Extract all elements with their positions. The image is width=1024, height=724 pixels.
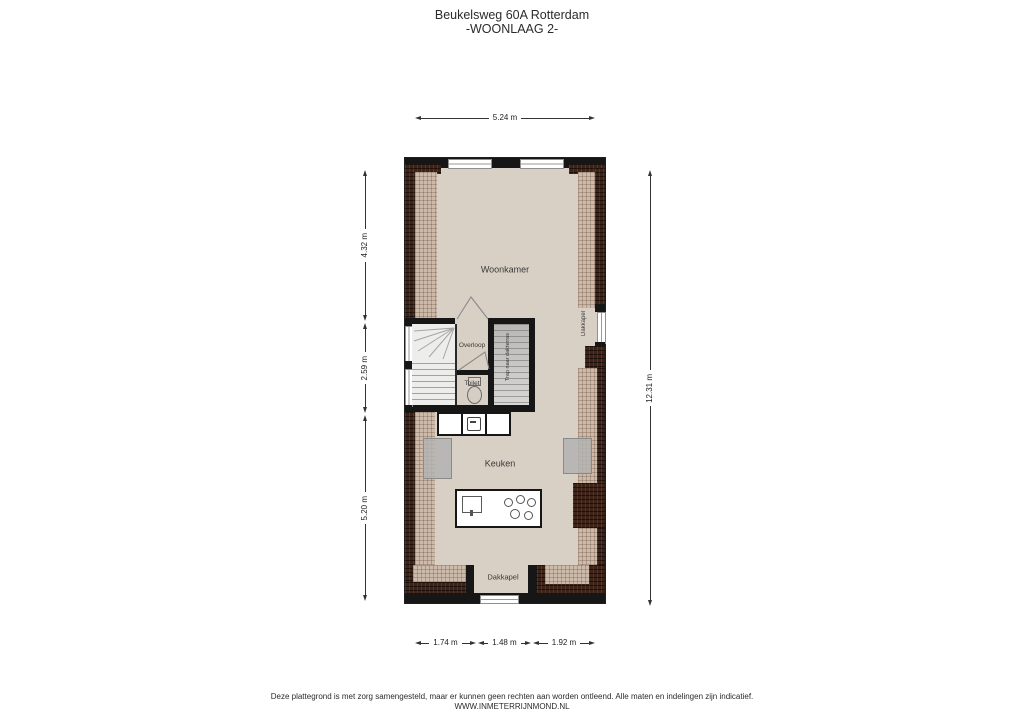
dimension-bottom-right: 1.92 m xyxy=(533,637,595,649)
address-title: Beukelsweg 60A Rotterdam xyxy=(0,8,1024,22)
dimension-left-bottom-label: 5.20 m xyxy=(361,492,369,524)
room-label-dakkapel-right: Dakkapel xyxy=(581,311,587,336)
room-label-toilet: Toilet xyxy=(464,381,479,388)
room-label-keuken: Keuken xyxy=(485,460,516,469)
room-label-overloop: Overloop xyxy=(459,343,485,350)
dimension-left-top-label: 4.32 m xyxy=(361,229,369,261)
dimension-left-bottom: 5.20 m xyxy=(359,415,371,601)
footer-disclaimer: Deze plattegrond is met zorg samengestel… xyxy=(0,692,1024,702)
dimension-bottom-middle: 1.48 m xyxy=(478,637,531,649)
dimension-left-middle: 2.59 m xyxy=(359,323,371,413)
dimension-top: 5.24 m xyxy=(415,112,595,124)
floorplan-page: Beukelsweg 60A Rotterdam -WOONLAAG 2- xyxy=(0,0,1024,724)
dimension-left-top: 4.32 m xyxy=(359,170,371,321)
room-label-dakkapel-bottom: Dakkapel xyxy=(487,573,518,581)
dimension-left-middle-label: 2.59 m xyxy=(361,352,369,384)
page-title: Beukelsweg 60A Rotterdam -WOONLAAG 2- xyxy=(0,8,1024,37)
footer-website: WWW.INMETERRIJNMOND.NL xyxy=(0,702,1024,712)
dimension-right: 12.31 m xyxy=(644,170,656,606)
room-label-trap-dakterras: Trap naar dakterras xyxy=(506,333,512,381)
dimension-bottom-right-label: 1.92 m xyxy=(548,639,580,647)
floor-subtitle: -WOONLAAG 2- xyxy=(0,22,1024,36)
dimension-top-label: 5.24 m xyxy=(489,114,521,122)
dimension-bottom-middle-label: 1.48 m xyxy=(488,639,520,647)
footer: Deze plattegrond is met zorg samengestel… xyxy=(0,692,1024,712)
floorplan-canvas: Woonkamer Overloop Toilet Trap naar dakt… xyxy=(405,158,605,603)
room-label-woonkamer: Woonkamer xyxy=(481,266,529,275)
dimension-right-label: 12.31 m xyxy=(646,370,654,407)
dimension-bottom-left-label: 1.74 m xyxy=(429,639,461,647)
dimension-bottom-left: 1.74 m xyxy=(415,637,476,649)
